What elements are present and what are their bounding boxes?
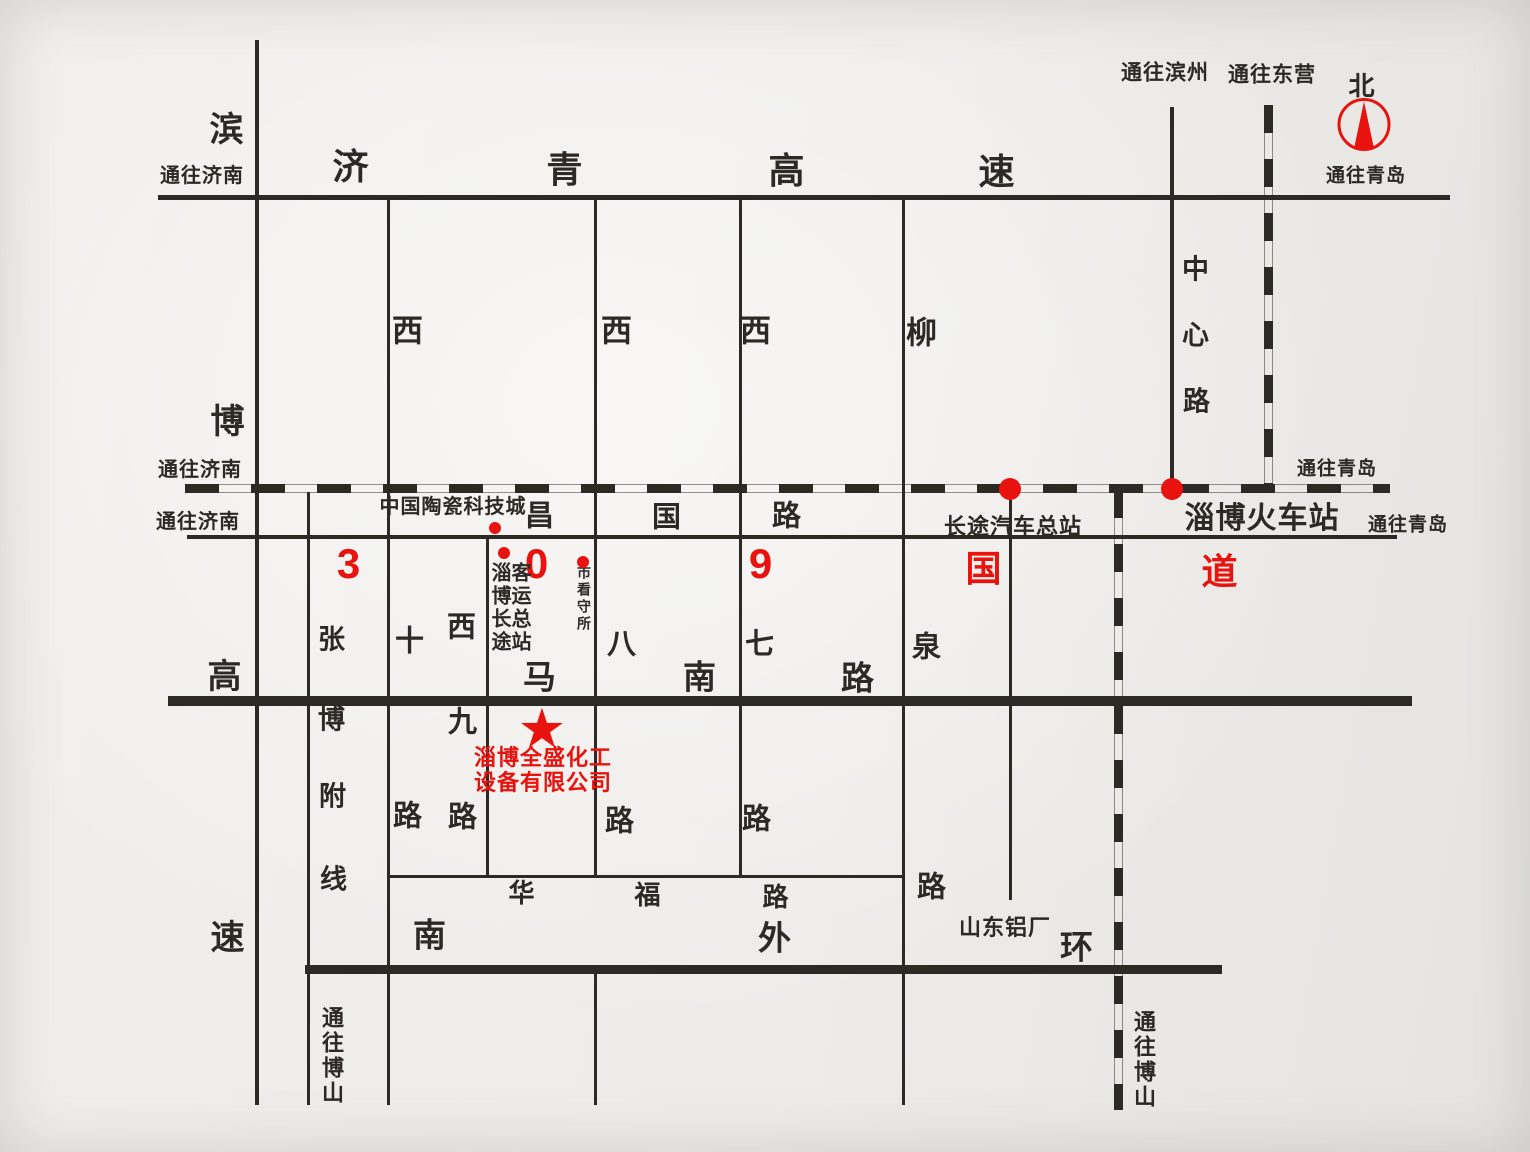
label-waihuan-char-wai: 外 xyxy=(758,922,792,955)
road-jiqing-expressway xyxy=(158,195,1450,200)
road-liuquan-road xyxy=(902,198,905,1105)
label-zhangbo-char-fu: 附 xyxy=(319,784,347,811)
label-jiqing-char-qing: 青 xyxy=(546,152,583,188)
bus-terminal-dot xyxy=(999,478,1021,500)
label-xijiu-char-jiu: 九 xyxy=(448,709,478,738)
label-waihuan-char-huan: 环 xyxy=(1060,931,1094,964)
road-huafu-road xyxy=(387,875,903,878)
road-station-spur xyxy=(1009,490,1012,900)
label-zhongxin-char-lu: 路 xyxy=(1183,389,1211,416)
label-to-jinan-rail: 通往济南 xyxy=(158,460,242,480)
road-railway-south-branch xyxy=(1114,490,1123,1110)
label-zhangbo-char-zhang: 张 xyxy=(318,627,346,654)
label-g309-char-dao: 道 xyxy=(1201,554,1238,590)
label-xishi-char-lu: 路 xyxy=(393,803,423,832)
label-xiqi-char-xi: 西 xyxy=(740,316,772,347)
label-xiqi-char-lu: 路 xyxy=(742,806,772,835)
label-bus-terminal: 长途汽车总站 xyxy=(944,516,1082,538)
road-railway-north-branch xyxy=(1264,105,1273,488)
road-binbo-expressway xyxy=(255,40,259,1105)
label-binbo-char-gao: 高 xyxy=(208,660,243,694)
label-xiba-char-lu: 路 xyxy=(605,808,635,837)
road-xishi-road xyxy=(387,198,390,1105)
ceramics-city-dot xyxy=(489,522,501,534)
company-location-star-icon: ★ xyxy=(518,702,566,756)
label-to-boshan-left: 通往博山 xyxy=(320,1006,342,1106)
label-jiqing-char-su: 速 xyxy=(978,154,1015,190)
label-shandong-aluminum: 山东铝厂 xyxy=(959,917,1051,939)
label-liuquan-char-liu: 柳 xyxy=(906,318,938,349)
label-huafu-char-lu: 路 xyxy=(762,884,789,910)
label-changguo-char-lu: 路 xyxy=(772,503,802,532)
train-station-dot xyxy=(1161,478,1183,500)
label-liuquan-char-lu: 路 xyxy=(917,874,947,903)
label-train-station: 淄博火车站 xyxy=(1185,504,1340,534)
label-to-binzhou: 通往滨州 xyxy=(1121,63,1209,84)
label-xishi-char-shi: 十 xyxy=(395,628,425,657)
road-zhongxin-road xyxy=(1170,107,1174,489)
road-changguo-road-g309 xyxy=(187,535,1397,539)
label-to-qingdao-rail: 通往青岛 xyxy=(1297,460,1377,479)
road-xiba-road-lower xyxy=(594,969,597,1105)
label-jiqing-char-ji: 济 xyxy=(332,149,369,185)
label-manan-char-nan: 南 xyxy=(683,661,717,694)
label-zhangbo-char-bo: 博 xyxy=(318,707,346,734)
label-binbo-char-su: 速 xyxy=(211,921,246,955)
label-zhongxin-char-xin: 心 xyxy=(1182,323,1210,350)
label-xijiu-char-xi: 西 xyxy=(447,614,477,643)
label-g309-char-3: 3 xyxy=(337,543,361,585)
label-to-qingdao-compass: 通往青岛 xyxy=(1326,167,1406,186)
label-to-jinan-road: 通往济南 xyxy=(156,512,240,532)
road-manan-road xyxy=(168,696,1412,706)
label-zhongxin-char-zhong: 中 xyxy=(1182,257,1210,284)
label-coach-station-col2: 客运总站 xyxy=(509,562,529,654)
label-manan-char-ma: 马 xyxy=(523,661,557,694)
road-nanwaihuan-road xyxy=(305,965,1222,974)
label-manan-char-lu: 路 xyxy=(841,662,875,695)
label-detention-house: 市看守所 xyxy=(577,565,591,633)
label-to-jinan-top: 通往济南 xyxy=(160,166,244,186)
label-liuquan-char-quan: 泉 xyxy=(912,634,942,663)
label-xiba-char-xi: 西 xyxy=(601,316,633,347)
compass-north-icon xyxy=(1332,95,1396,164)
label-jiqing-char-gao: 高 xyxy=(768,153,805,189)
label-company-name-line2: 设备有限公司 xyxy=(474,772,612,794)
label-to-qingdao-road: 通往青岛 xyxy=(1368,516,1448,535)
label-xijiu-char-lu: 路 xyxy=(448,804,478,833)
label-g309-char-9: 9 xyxy=(749,543,773,585)
road-zhangbo-fuxian xyxy=(307,492,310,1105)
zibo-location-map: 通往济南滨济青高速通往滨州通往东营北通往青岛西西西柳中心路博通往济南通往青岛通往… xyxy=(0,0,1530,1152)
label-north-char: 北 xyxy=(1348,73,1375,99)
road-xiqi-road xyxy=(739,198,742,876)
label-xishi-char-xi: 西 xyxy=(392,316,424,347)
label-changguo-char-guo: 国 xyxy=(652,504,682,533)
coach-station-dot xyxy=(498,547,510,559)
label-xiba-char-ba: 八 xyxy=(607,631,637,660)
label-xiqi-char-qi: 七 xyxy=(745,631,775,660)
label-binbo-char-bo: 博 xyxy=(211,405,246,439)
label-waihuan-char-nan: 南 xyxy=(413,919,447,952)
label-coach-station-col1: 淄博长途 xyxy=(489,562,509,654)
label-changguo-char-chang: 昌 xyxy=(525,503,555,532)
label-huafu-char-hua: 华 xyxy=(508,880,535,906)
label-g309-char-guo: 国 xyxy=(965,551,1002,587)
label-binbo-char-bin: 滨 xyxy=(210,113,245,147)
detention-house-dot xyxy=(577,556,589,568)
label-to-dongying: 通往东营 xyxy=(1228,65,1316,86)
label-zhangbo-char-xian: 线 xyxy=(320,867,348,894)
label-ceramics-city: 中国陶瓷科技城 xyxy=(380,497,527,517)
label-huafu-char-fu: 福 xyxy=(634,882,661,908)
label-to-boshan-right: 通往博山 xyxy=(1132,1010,1154,1110)
road-railway-main xyxy=(185,484,1390,493)
